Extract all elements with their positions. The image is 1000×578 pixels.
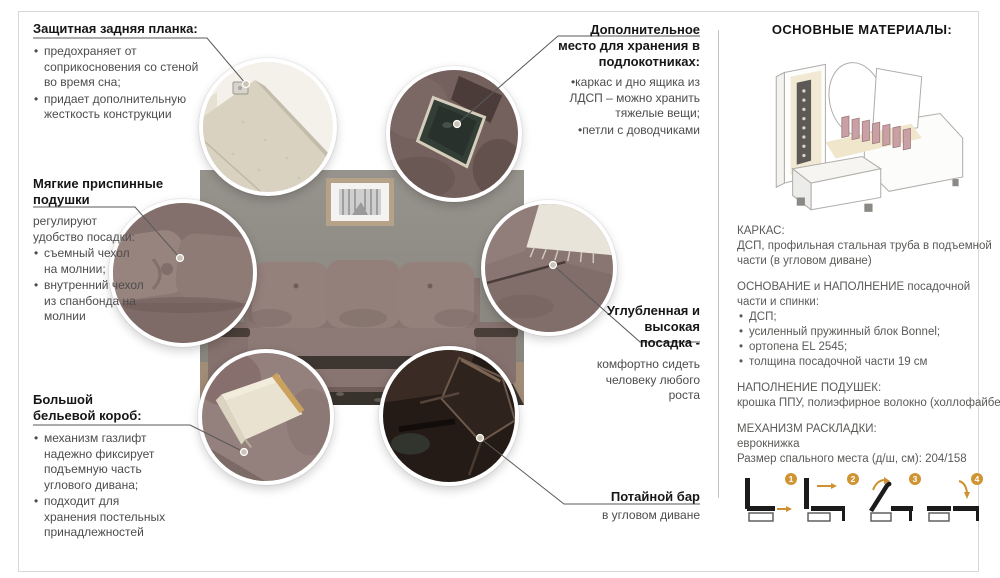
section-label: ОСНОВАНИЕ и НАПОЛНЕНИЕ посадочной bbox=[737, 280, 989, 295]
section-label: МЕХАНИЗМ РАСКЛАДКИ: bbox=[737, 422, 989, 437]
callout-text: комфортно сидеть человеку любого роста bbox=[585, 357, 700, 404]
materials-base-section: ОСНОВАНИЕ и НАПОЛНЕНИЕ посадочной части … bbox=[737, 280, 989, 370]
section-label: КАРКАС: bbox=[737, 224, 989, 239]
callout-bullet: подходит для хранения постельных принадл… bbox=[33, 494, 169, 541]
mechanism-step-1-icon: 1 bbox=[739, 476, 797, 522]
step-number-badge: 2 bbox=[847, 473, 859, 485]
callout-deep-seat: Углубленная и высокая посадка - комфортн… bbox=[570, 303, 700, 404]
section-bullet: толщина посадочной части 19 см bbox=[737, 355, 989, 370]
callout-back-cushions: Мягкие приспинные подушки регулируют удо… bbox=[33, 176, 173, 325]
callout-back-plank: Защитная задняя планка: предохраняет от … bbox=[33, 21, 219, 123]
step-number-badge: 3 bbox=[909, 473, 921, 485]
section-label: части и спинки: bbox=[737, 295, 989, 310]
callout-bullet: предохраняет от соприкосновения со стено… bbox=[33, 44, 208, 91]
callout-linen-box: Большой бельевой короб: механизм газлифт… bbox=[33, 392, 183, 541]
callout-bullet: каркас и дно ящика из ЛДСП – можно храни… bbox=[562, 75, 700, 122]
section-line: еврокнижка bbox=[737, 437, 989, 452]
section-bullet: усиленный пружинный блок Bonnel; bbox=[737, 325, 989, 340]
step-number-badge: 4 bbox=[971, 473, 983, 485]
materials-specs: КАРКАС: ДСП, профильная стальная труба в… bbox=[737, 224, 989, 478]
wall-picture bbox=[326, 178, 394, 226]
section-line: крошка ППУ, полиэфирное волокно (холлофа… bbox=[737, 396, 989, 411]
callout-bullet: съемный чехол на молнии; bbox=[33, 246, 145, 277]
materials-mechanism-section: МЕХАНИЗМ РАСКЛАДКИ: еврокнижка Размер сп… bbox=[737, 422, 989, 467]
callout-title: Углубленная и высокая посадка - bbox=[600, 303, 700, 351]
step-number-badge: 1 bbox=[785, 473, 797, 485]
callout-bullet: придает дополнительную жесткость констру… bbox=[33, 92, 208, 123]
materials-frame-section: КАРКАС: ДСП, профильная стальная труба в… bbox=[737, 224, 989, 269]
mechanism-step-4-icon: 4 bbox=[925, 476, 983, 522]
callout-title: Потайной бар bbox=[560, 489, 700, 505]
callout-title: Дополнительное место для хранения в подл… bbox=[555, 22, 700, 70]
callout-circle-linen-box bbox=[198, 349, 334, 485]
section-line: ДСП, профильная стальная труба в подъемн… bbox=[737, 239, 989, 254]
section-line: Размер спального места (д/ш, см): 204/15… bbox=[737, 452, 989, 467]
section-bullet: ортопена EL 2545; bbox=[737, 340, 989, 355]
callout-bullet: внутренний чехол из спанбонда на молнии bbox=[33, 278, 145, 325]
materials-title: ОСНОВНЫЕ МАТЕРИАЛЫ: bbox=[737, 22, 987, 37]
callout-circle-back-plank bbox=[199, 58, 337, 196]
product-infographic: Защитная задняя планка: предохраняет от … bbox=[0, 0, 1000, 578]
mechanism-step-2-icon: 2 bbox=[801, 476, 859, 522]
mechanism-steps: 1 2 3 bbox=[739, 476, 987, 522]
section-line: части (в угловом диване) bbox=[737, 254, 989, 269]
callout-hidden-bar: Потайной бар в угловом диване bbox=[560, 489, 700, 524]
callout-circle-hidden-bar bbox=[379, 346, 519, 486]
section-bullet: ДСП; bbox=[737, 310, 989, 325]
callout-bullet: петли с доводчиками bbox=[562, 123, 700, 139]
callout-circle-armrest-storage bbox=[386, 66, 522, 202]
callout-armrest-storage: Дополнительное место для хранения в подл… bbox=[540, 22, 700, 138]
callout-title: Большой бельевой короб: bbox=[33, 392, 151, 424]
callout-title: Защитная задняя планка: bbox=[33, 21, 219, 37]
callout-bullet: механизм газлифт надежно фиксирует подъе… bbox=[33, 431, 169, 493]
callout-text: в угловом диване bbox=[560, 508, 700, 524]
section-label: НАПОЛНЕНИЕ ПОДУШЕК: bbox=[737, 381, 989, 396]
mechanism-step-3-icon: 3 bbox=[863, 476, 921, 522]
materials-diagram bbox=[766, 54, 976, 216]
materials-cushion-fill-section: НАПОЛНЕНИЕ ПОДУШЕК: крошка ППУ, полиэфир… bbox=[737, 381, 989, 411]
callout-lead: регулируют удобство посадки: bbox=[33, 214, 145, 245]
callout-title: Мягкие приспинные подушки bbox=[33, 176, 173, 208]
